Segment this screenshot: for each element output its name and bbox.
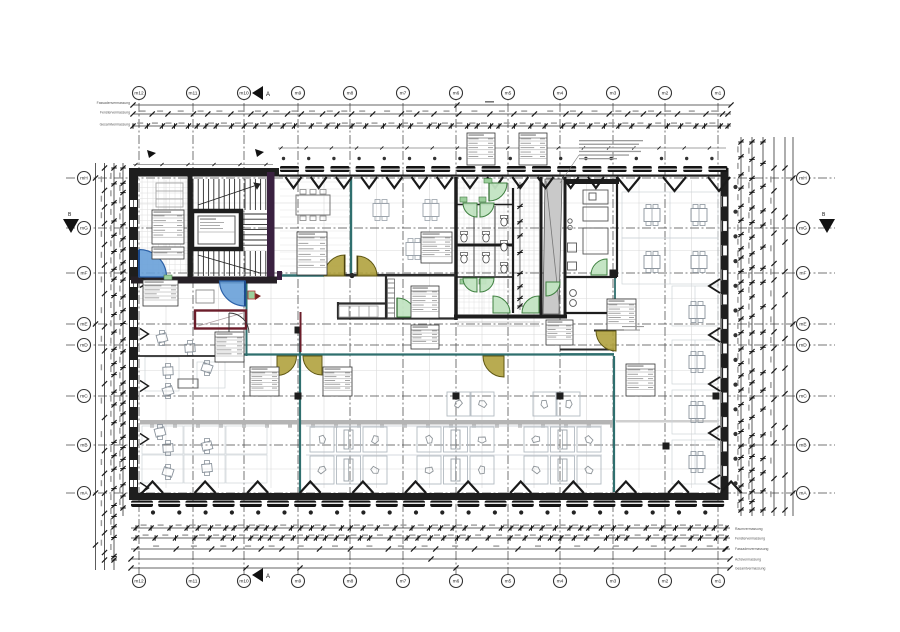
svg-text:m7: m7 <box>400 579 407 585</box>
svg-text:m10: m10 <box>239 91 249 97</box>
svg-text:mH: mH <box>80 176 88 182</box>
svg-text:mH: mH <box>799 176 807 182</box>
svg-text:mE: mE <box>799 322 806 328</box>
svg-text:Raumvermassung: Raumvermassung <box>735 527 763 531</box>
svg-text:mA: mA <box>799 491 807 497</box>
svg-text:m2: m2 <box>662 91 669 97</box>
svg-text:m8: m8 <box>347 579 354 585</box>
svg-text:Gesamtvermassung: Gesamtvermassung <box>735 567 765 571</box>
svg-text:m11: m11 <box>189 91 198 97</box>
svg-text:m3: m3 <box>610 91 617 97</box>
svg-text:A: A <box>266 92 270 98</box>
svg-text:m9: m9 <box>295 91 302 97</box>
svg-text:m4: m4 <box>557 91 564 97</box>
svg-text:m10: m10 <box>239 579 249 585</box>
svg-text:Achsvermassung: Achsvermassung <box>735 558 761 562</box>
svg-text:Fassadenvermassung: Fassadenvermassung <box>735 547 768 551</box>
svg-text:m11: m11 <box>189 579 198 585</box>
svg-text:mG: mG <box>799 226 807 232</box>
svg-text:m6: m6 <box>453 91 460 97</box>
svg-text:m1: m1 <box>715 579 722 585</box>
svg-text:Fenstervermassung: Fenstervermassung <box>100 111 130 115</box>
svg-text:mF: mF <box>800 271 807 277</box>
svg-text:m2: m2 <box>662 579 669 585</box>
svg-text:mB: mB <box>80 443 87 449</box>
svg-text:m5: m5 <box>505 579 512 585</box>
svg-text:mF: mF <box>81 271 88 277</box>
svg-text:mC: mC <box>799 394 807 400</box>
svg-text:mD: mD <box>80 343 88 349</box>
svg-text:m7: m7 <box>400 91 407 97</box>
svg-text:mD: mD <box>799 343 807 349</box>
svg-text:mE: mE <box>80 322 87 328</box>
svg-text:m8: m8 <box>347 91 354 97</box>
svg-text:m1: m1 <box>715 91 722 97</box>
svg-text:A: A <box>266 574 270 580</box>
svg-text:m6: m6 <box>453 579 460 585</box>
svg-text:m4: m4 <box>557 579 564 585</box>
svg-text:mA: mA <box>80 491 88 497</box>
svg-text:mG: mG <box>80 226 88 232</box>
svg-text:m9: m9 <box>295 579 302 585</box>
svg-text:m12: m12 <box>134 91 144 97</box>
svg-text:Fassadenvermassung: Fassadenvermassung <box>97 101 130 105</box>
svg-text:m3: m3 <box>610 579 617 585</box>
svg-text:Fenstervermassung: Fenstervermassung <box>735 537 765 541</box>
svg-text:m12: m12 <box>134 579 144 585</box>
svg-text:mC: mC <box>80 394 88 400</box>
svg-text:Gesamtvermassung: Gesamtvermassung <box>100 123 130 127</box>
svg-text:m5: m5 <box>505 91 512 97</box>
svg-text:mB: mB <box>799 443 806 449</box>
